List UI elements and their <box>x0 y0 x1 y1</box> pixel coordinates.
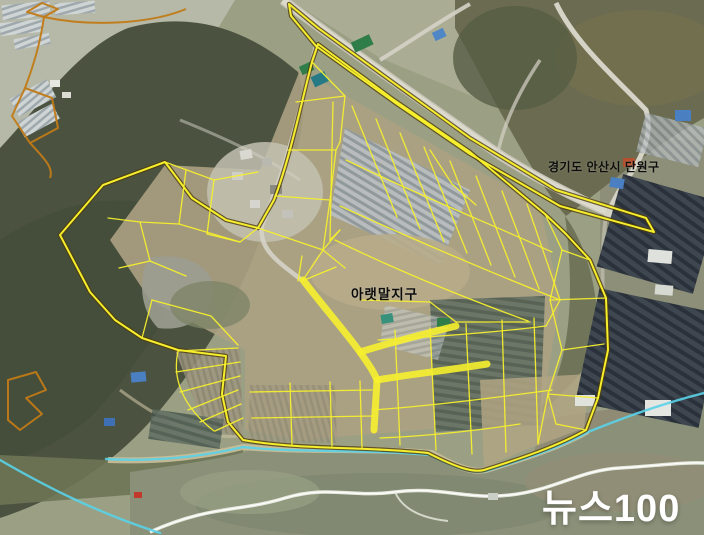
district <box>289 4 654 232</box>
parcel-line <box>140 222 179 224</box>
satellite-map: 경기도 안산시 단원구 아랫말지구 뉴스100 <box>0 0 704 535</box>
district <box>60 44 608 471</box>
parcel-line <box>378 326 546 340</box>
orange-line <box>12 88 58 143</box>
parcel-line <box>548 394 598 398</box>
parcel-line <box>360 381 362 448</box>
cyan-line <box>106 393 704 472</box>
parcel-line <box>352 106 397 217</box>
parcel-line <box>534 318 538 444</box>
orange-line <box>25 17 44 88</box>
parcel-line <box>538 394 548 444</box>
road-fill <box>360 326 456 352</box>
parcel-line <box>548 350 562 394</box>
orange-line <box>44 9 186 23</box>
parcel-line <box>395 330 400 445</box>
parcel-line <box>380 424 520 438</box>
parcel-line <box>527 204 560 300</box>
parcel-line <box>180 376 240 392</box>
parcel-line <box>140 222 186 276</box>
parcel-line <box>372 390 552 410</box>
parcel-line <box>556 424 586 430</box>
parcel-line <box>346 160 552 252</box>
cyan-line <box>0 460 160 533</box>
parcel-line <box>142 300 152 338</box>
orange-line <box>8 372 46 430</box>
orange-line <box>27 3 58 17</box>
parcel-line <box>108 218 140 222</box>
district-label: 아랫말지구 <box>351 283 418 303</box>
parcel-line <box>200 404 241 422</box>
parcel-line <box>176 362 240 372</box>
parcel-line <box>330 382 332 446</box>
parcel-line <box>335 240 528 321</box>
parcel-line <box>430 302 456 322</box>
parcel-line <box>252 416 374 418</box>
parcel-line <box>152 300 238 345</box>
parcel-line <box>290 383 292 445</box>
parcel-line <box>450 161 491 265</box>
parcel-line <box>466 324 472 454</box>
parcel-line <box>548 394 556 424</box>
orange-line <box>30 143 51 178</box>
casing <box>60 44 608 471</box>
parcel-line <box>330 102 340 240</box>
casing <box>289 4 654 232</box>
parcel-line <box>250 390 372 392</box>
parcel-line <box>119 261 150 268</box>
parcel-line <box>276 196 330 200</box>
parcel-line <box>562 344 604 350</box>
parcel-line <box>424 147 467 253</box>
parcel-line <box>376 119 420 229</box>
road-fill <box>374 380 377 430</box>
parcel-overlay <box>0 0 704 535</box>
region-label: 경기도 안산시 단원구 <box>548 158 660 175</box>
parcel-line <box>502 320 506 452</box>
parcel-line <box>452 184 476 205</box>
parcel-line <box>430 150 452 184</box>
parcel-line <box>188 390 238 410</box>
parcel-line <box>430 328 436 450</box>
parcel-line <box>303 250 323 280</box>
news-watermark: 뉴스100 <box>542 477 680 532</box>
parcel-line <box>179 170 186 224</box>
parcel-line <box>312 62 345 142</box>
